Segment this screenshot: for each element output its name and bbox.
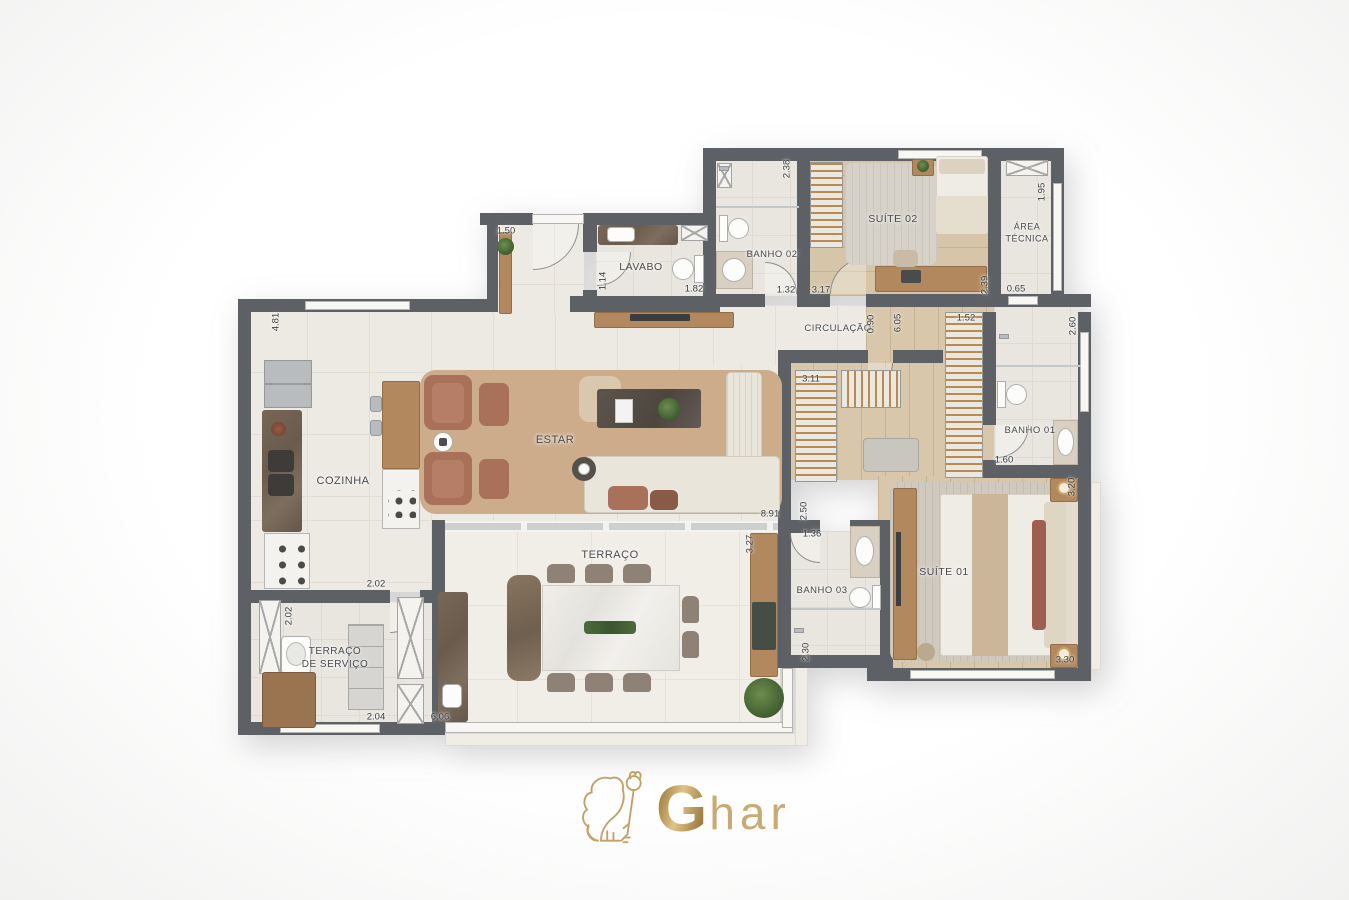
- dimension-label: 2.50: [799, 502, 810, 521]
- brand-logo: G har: [576, 764, 791, 852]
- dimension-label: 3.20: [1067, 478, 1078, 497]
- dimension-label: 1.60: [995, 455, 1014, 466]
- dimension-label: 2.02: [284, 607, 295, 626]
- dimension-label: 3.11: [802, 374, 820, 385]
- dimension-label: 2.30: [801, 643, 812, 662]
- dimension-label: 3.27: [745, 535, 756, 554]
- room-label-banho-01: BANHO 01: [1005, 425, 1056, 437]
- brand-name-rest: har: [709, 790, 790, 836]
- dimension-label: 1.14: [598, 272, 609, 291]
- dimension-label: 1.95: [1037, 183, 1048, 202]
- dimension-label: 6.06: [431, 712, 450, 723]
- room-label-suite-02: SUÍTE 02: [868, 213, 918, 227]
- room-label-estar: ESTAR: [536, 433, 574, 447]
- dimension-label: 1.82: [685, 284, 704, 295]
- room-label-circulacao: CIRCULAÇÃO: [804, 323, 871, 335]
- dimension-label: 0.65: [1007, 284, 1026, 295]
- room-label-banho-03: BANHO 03: [797, 585, 848, 597]
- room-label-cozinha: COZINHA: [317, 474, 370, 488]
- dimension-label: 2.02: [367, 579, 386, 590]
- dimension-label: 2.60: [1068, 317, 1079, 336]
- dimension-label: 6.05: [893, 314, 904, 333]
- floor-plan-canvas: COZINHAESTARLAVABOBANHO 02SUÍTE 02ÁREA T…: [0, 0, 1349, 900]
- dimension-label: 1.32: [777, 285, 796, 296]
- room-label-suite-01: SUÍTE 01: [919, 566, 969, 580]
- room-label-area-tecnica: ÁREA TÉCNICA: [1005, 221, 1048, 244]
- dimension-label: 3.17: [812, 285, 831, 296]
- lion-key-icon: [576, 766, 654, 850]
- dimension-label: 2.38: [782, 160, 793, 179]
- dimension-label: 1.36: [803, 529, 822, 540]
- room-label-terraco-servico: TERRAÇO DE SERVIÇO: [302, 645, 369, 671]
- room-label-lavabo: LAVABO: [619, 261, 662, 275]
- dimension-label: 2.39: [980, 276, 991, 295]
- room-label-terraco: TERRAÇO: [581, 548, 638, 562]
- brand-initial: G: [656, 775, 707, 841]
- dimension-label: 3.30: [1056, 655, 1075, 666]
- dimension-label: 2.04: [367, 712, 386, 723]
- dimension-label: 8.91: [761, 509, 780, 520]
- dimension-label: 1.52: [957, 313, 976, 324]
- room-label-banho-02: BANHO 02: [747, 249, 798, 261]
- dimension-label: 1.50: [497, 226, 516, 237]
- dimension-label: 4.81: [271, 313, 282, 332]
- dimension-label: 0.90: [866, 315, 877, 334]
